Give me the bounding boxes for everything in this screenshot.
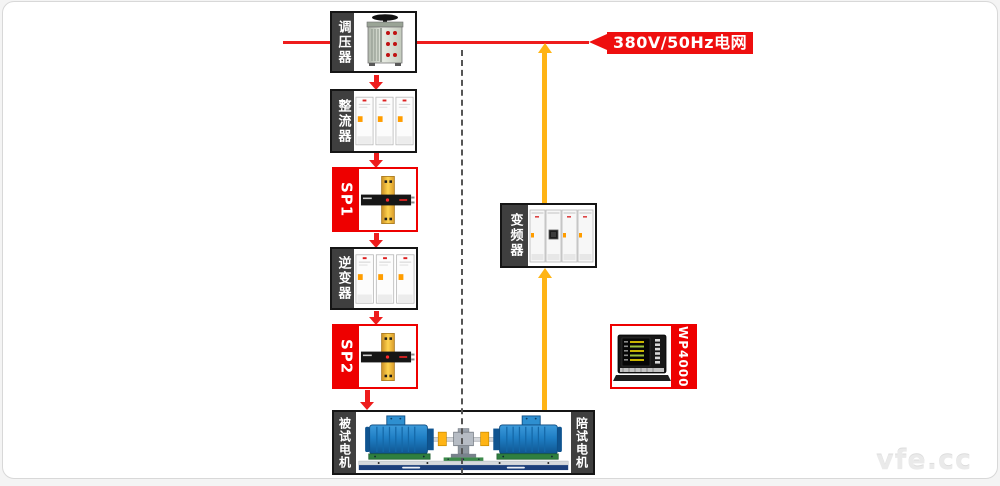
flow-arrow-sp2-to-motor (360, 390, 374, 410)
feedback-line-upper (542, 52, 547, 203)
node-label-test-motor: 被试电机 (334, 412, 356, 473)
node-label-accompany-motor: 陪试电机 (571, 412, 593, 473)
node-label: 调压器 (332, 13, 354, 71)
node-label: SP1 (334, 169, 359, 230)
node-label: 变频器 (502, 205, 528, 266)
flow-arrow-rectifier-to-sp1 (369, 153, 383, 168)
feedback-line-lower (542, 278, 547, 410)
motor-test-bench-illustration (356, 412, 571, 473)
flow-arrow-inverter-to-sp2 (369, 311, 383, 325)
rectifier-cabinets-illustration (354, 91, 415, 151)
voltage-regulator-illustration (354, 13, 415, 71)
grid-label: 380V/50Hz电网 (607, 32, 753, 54)
node-sp2-transducer: SP2 (332, 324, 418, 389)
watermark: vfe.cc (876, 445, 972, 476)
sp-transducer-illustration (359, 326, 416, 387)
node-rectifier: 整流器 (330, 89, 417, 153)
node-label: SP2 (334, 326, 359, 387)
node-motor-pair: 被试电机 (332, 410, 595, 475)
flow-arrow-regulator-to-rectifier (369, 75, 383, 90)
test-system-diagram: 380V/50Hz电网 调压器 (0, 0, 1000, 486)
node-voltage-regulator: 调压器 (330, 11, 417, 73)
wp4000-instrument-illustration (612, 326, 671, 387)
vfd-cabinets-illustration (528, 205, 595, 266)
node-sp1-transducer: SP1 (332, 167, 418, 232)
node-inverter: 逆变器 (330, 247, 418, 310)
dashed-separator-line (461, 50, 463, 474)
inverter-cabinets-illustration (354, 249, 416, 308)
node-wp4000-analyzer: WP4000 (610, 324, 697, 389)
node-label: 整流器 (332, 91, 354, 151)
grid-arrow-left-icon (589, 34, 607, 50)
flow-arrow-sp1-to-inverter (369, 233, 383, 248)
sp-transducer-illustration (359, 169, 416, 230)
node-label: WP4000 (671, 326, 695, 387)
node-label: 逆变器 (332, 249, 354, 308)
feedback-arrow-up-icon (538, 268, 552, 278)
node-frequency-converter: 变频器 (500, 203, 597, 268)
